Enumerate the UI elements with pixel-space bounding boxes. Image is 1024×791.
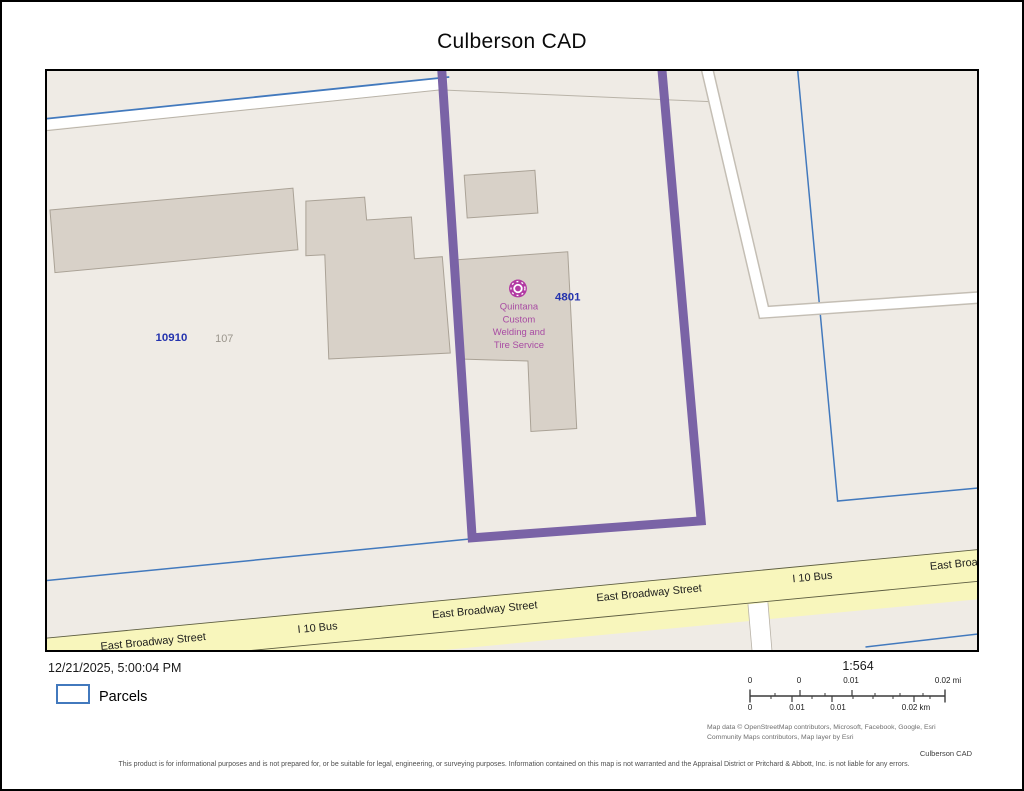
agency-name: Culberson CAD [707,749,972,758]
map-attribution: Map data © OpenStreetMap contributors, M… [707,723,979,742]
map-canvas: 10910 107 4801 Quintana Custom Welding a… [47,71,977,650]
parcel-situs-label: 107 [215,333,233,345]
scale-km-tick: 0.01 [830,703,846,712]
parcels-legend-swatch [56,684,90,704]
export-timestamp: 12/21/2025, 5:00:04 PM [48,661,181,675]
scale-km-tick: 0.01 [789,703,805,712]
selected-parcel-account-label: 4801 [555,291,581,303]
poi-name-line: Tire Service [494,340,544,351]
parcels-legend-label: Parcels [99,689,147,705]
scale-mi-tick: 0 [748,676,752,685]
poi-name-line: Custom [503,314,536,325]
poi-name-line: Quintana [500,301,539,312]
attribution-line: Map data © OpenStreetMap contributors, M… [707,724,936,731]
side-road-south [748,602,772,650]
scale-mi-tick: 0 [797,676,801,685]
scale-bar [748,688,950,704]
poi-marker-circle [509,280,527,298]
parcel-account-label: 10910 [156,332,188,344]
attribution-line: Community Maps contributors, Map layer b… [707,734,854,741]
scale-ratio: 1:564 [758,659,958,673]
legal-disclaimer: This product is for informational purpos… [32,761,996,768]
poi-name-line: Welding and [493,327,545,338]
tire-shop-marker-icon [509,280,527,298]
scale-mi-tick: 0.02 mi [935,676,961,685]
map-export-page: Culberson CAD [0,0,1024,791]
page-title: Culberson CAD [2,30,1022,54]
scale-km-tick: 0 [748,703,752,712]
poi-name-label: Quintana Custom Welding and Tire Service [493,301,545,351]
map-frame: 10910 107 4801 Quintana Custom Welding a… [45,69,979,652]
scale-km-tick: 0.02 km [902,703,930,712]
building-small-north [464,170,538,218]
scale-mi-tick: 0.01 [843,676,859,685]
